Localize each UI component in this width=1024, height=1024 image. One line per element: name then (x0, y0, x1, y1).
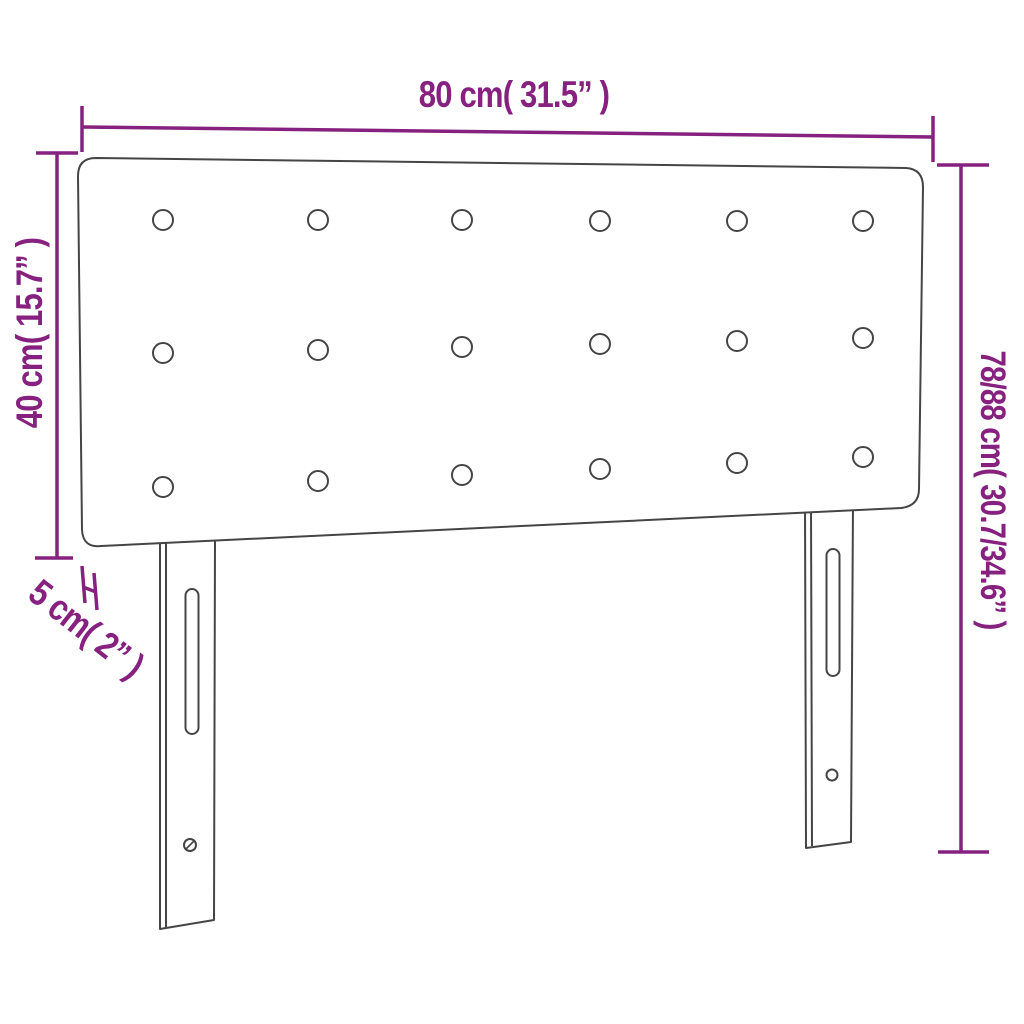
button-tuft (308, 471, 328, 491)
button-tuft (153, 343, 173, 363)
button-tuft (727, 331, 747, 351)
headboard-outline (78, 158, 923, 546)
leg-left (160, 538, 215, 929)
button-tuft (153, 477, 173, 497)
button-tuft (853, 328, 873, 348)
button-tuft (727, 453, 747, 473)
panel-height-dimension-label: 40 cm( 15.7” ) (9, 199, 51, 468)
button-tuft (590, 459, 610, 479)
button-tuft (308, 210, 328, 230)
button-tuft (590, 334, 610, 354)
button-tuft (308, 340, 328, 360)
button-tuft (727, 211, 747, 231)
button-tuft (452, 210, 472, 230)
leg-left-slot (186, 589, 199, 734)
width-dimension-label: 80 cm( 31.5” ) (371, 74, 657, 116)
total-height-dimension-label: 78/88 cm( 30.7/34.6” ) (971, 305, 1013, 675)
leg-right (805, 503, 853, 848)
button-tuft (153, 210, 173, 230)
diagram-canvas (0, 0, 1024, 1024)
leg-right-screw-hole (827, 770, 838, 781)
product-drawing (78, 158, 923, 929)
button-tuft (452, 337, 472, 357)
leg-right-slot (827, 549, 840, 676)
button-tuft (853, 211, 873, 231)
button-tuft (452, 465, 472, 485)
width-dimension-line (82, 127, 933, 137)
button-tuft (853, 447, 873, 467)
thickness-tick-left (82, 566, 85, 603)
dimension-diagram: 80 cm( 31.5” ) 40 cm( 15.7” ) 78/88 cm( … (0, 0, 1024, 1024)
button-tuft (590, 211, 610, 231)
leg-right-edge-line (811, 506, 812, 846)
